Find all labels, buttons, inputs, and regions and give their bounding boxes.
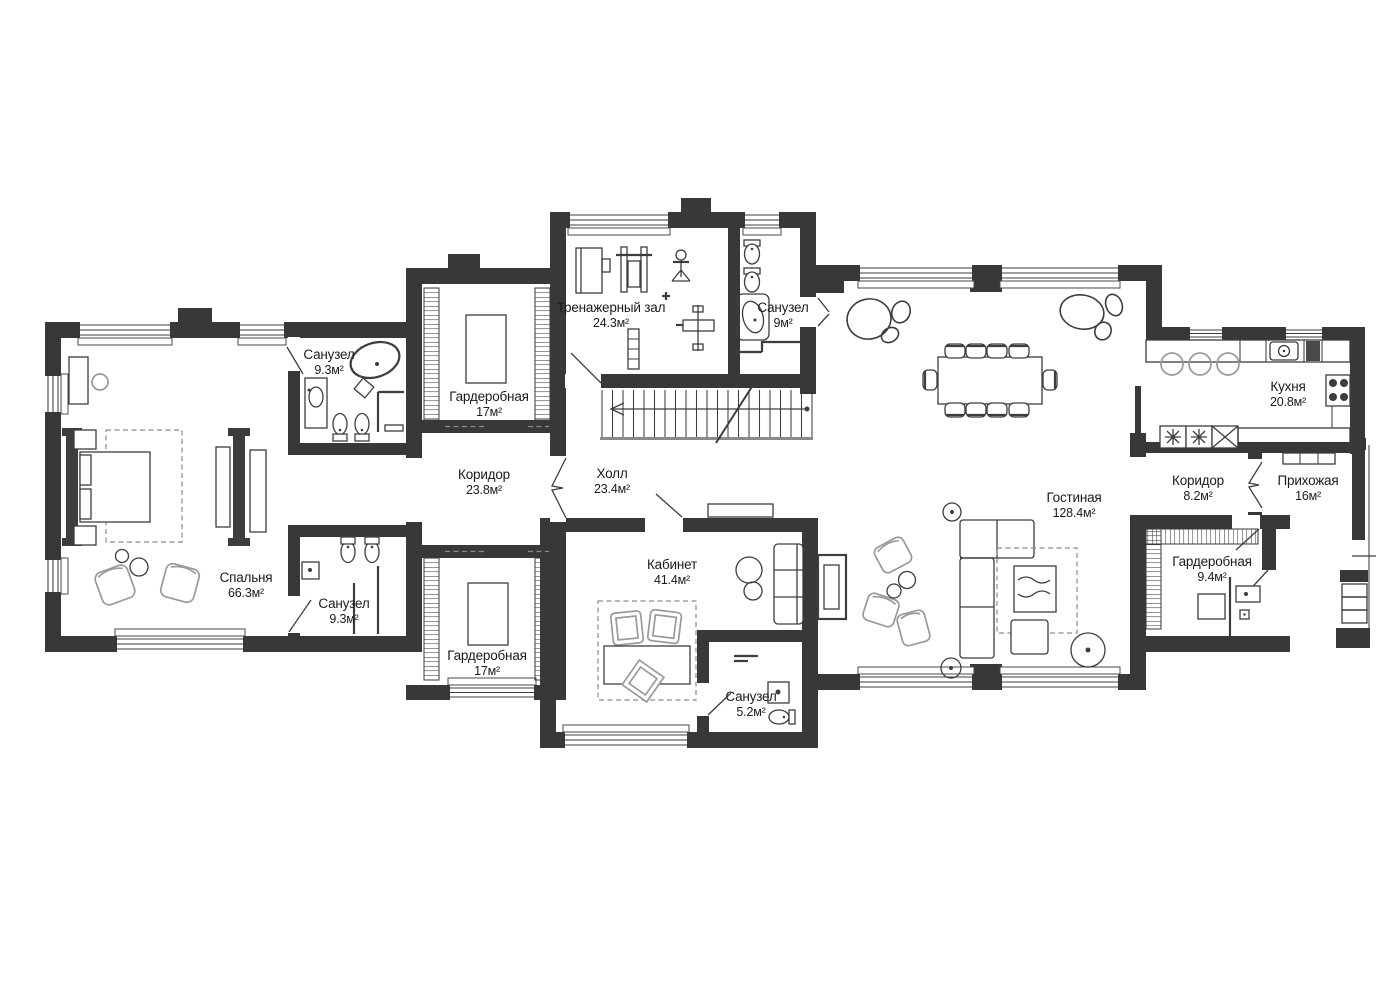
room-label-bath-master-top: Санузел9.3м² xyxy=(303,347,354,379)
room-label-living-room: Гостиная128.4м² xyxy=(1046,490,1101,522)
room-label-wardrobe-top: Гардеробная17м² xyxy=(449,389,528,421)
kitchen-fixtures xyxy=(1146,340,1350,448)
room-label-bath-master-bottom: Санузел9.3м² xyxy=(318,596,369,628)
staircase xyxy=(600,385,813,443)
room-label-bath-office: Санузел5.2м² xyxy=(725,689,776,721)
room-label-bedroom: Спальня66.3м² xyxy=(220,570,273,602)
living-room-furniture xyxy=(818,291,1125,678)
room-label-kitchen: Кухня20.8м² xyxy=(1270,379,1306,411)
floor-plan: Спальня66.3м² Санузел9.3м² Гардеробная17… xyxy=(0,0,1400,990)
room-label-hall: Холл23.4м² xyxy=(594,466,630,498)
room-label-office: Кабинет41.4м² xyxy=(647,557,697,589)
room-label-wardrobe-entry: Гардеробная9.4м² xyxy=(1172,554,1251,586)
gym-bathroom-fixtures xyxy=(737,240,800,352)
room-label-wardrobe-bottom: Гардеробная17м² xyxy=(447,648,526,680)
room-label-corridor-entry: Коридор8.2м² xyxy=(1172,473,1224,505)
room-label-entry-hall: Прихожая16м² xyxy=(1278,473,1339,505)
room-label-bath-gym: Санузел9м² xyxy=(757,300,808,332)
room-label-corridor-main: Коридор23.8м² xyxy=(458,467,510,499)
room-label-gym: Тренажерный зал24.3м² xyxy=(557,300,666,332)
